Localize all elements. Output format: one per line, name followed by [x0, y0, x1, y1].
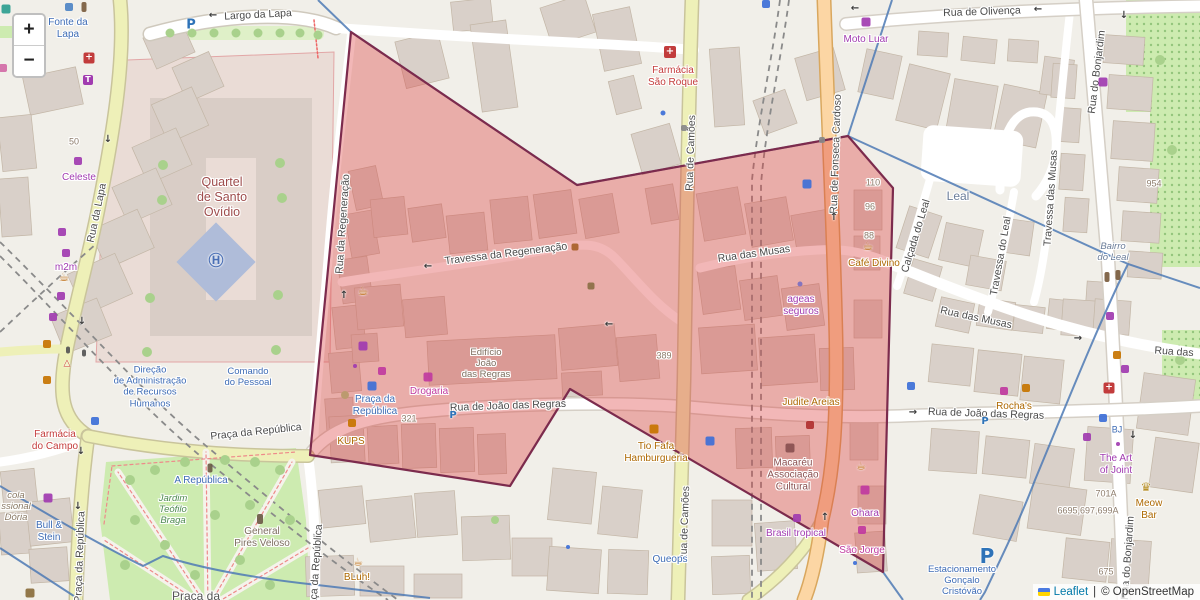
map-canvas	[0, 0, 1200, 600]
ukraine-flag-icon	[1038, 588, 1050, 596]
osm-credit[interactable]: © OpenStreetMap	[1101, 586, 1194, 598]
leaflet-link[interactable]: Leaflet	[1054, 586, 1089, 598]
zoom-out-button[interactable]: −	[14, 46, 44, 76]
zoom-control: + −	[12, 13, 46, 78]
attribution-separator: |	[1093, 586, 1096, 598]
leaflet-map[interactable]: Largo da LapaRua da LapaRua da Regeneraç…	[0, 0, 1200, 600]
zoom-in-button[interactable]: +	[14, 15, 44, 46]
attribution-bar: Leaflet | © OpenStreetMap	[1033, 584, 1200, 600]
red-selection-polygon[interactable]	[310, 32, 893, 572]
